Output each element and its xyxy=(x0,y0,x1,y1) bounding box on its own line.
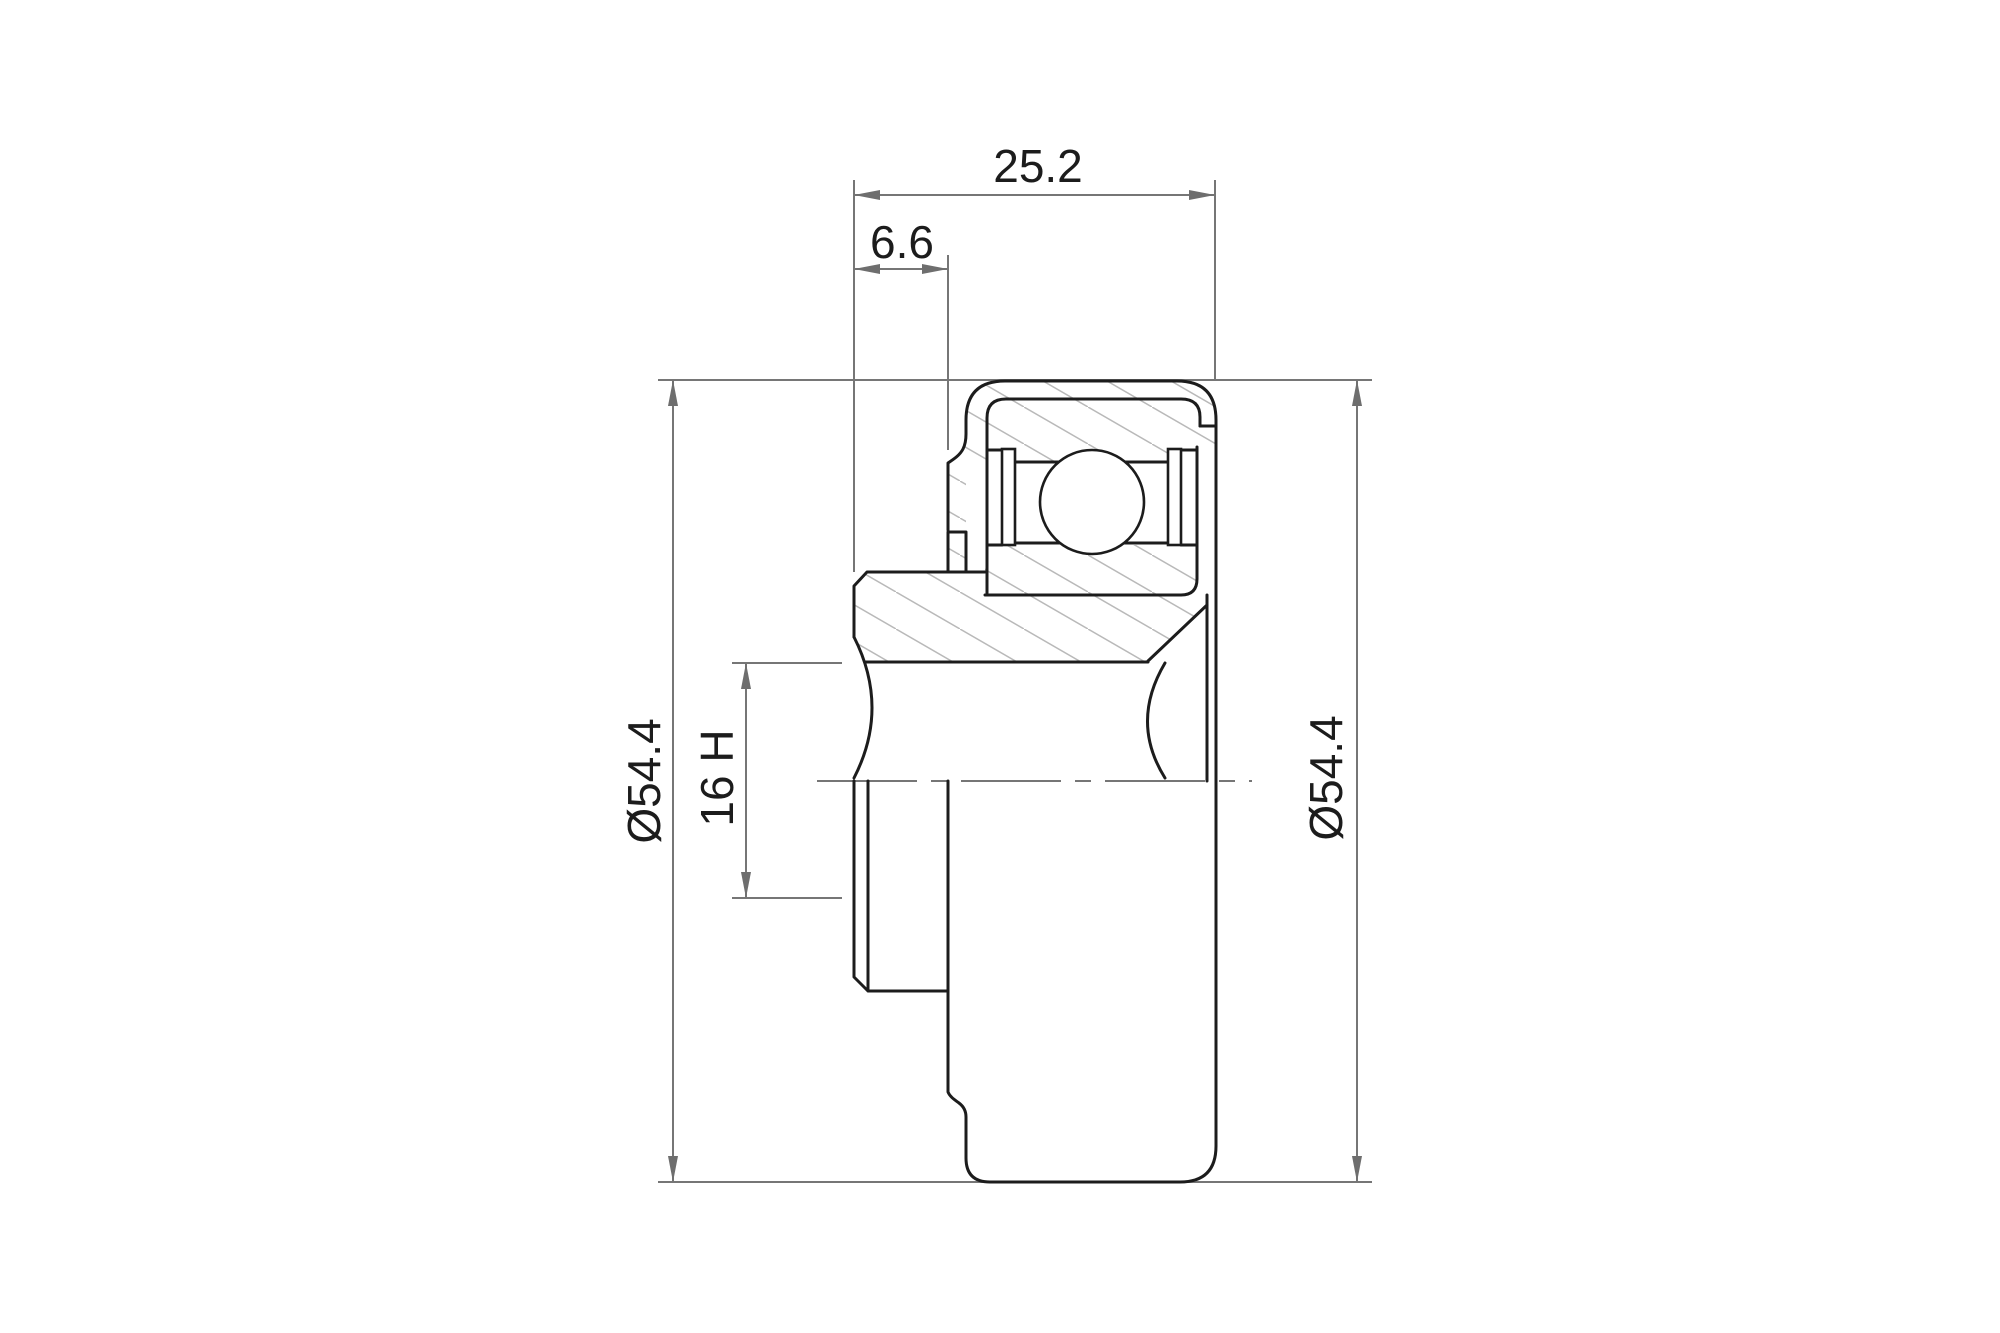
label-outer-diameter-left: Ø54.4 xyxy=(618,718,670,843)
arrow-252-left xyxy=(854,190,880,200)
arrow-d54l-bottom xyxy=(668,1156,678,1182)
left-gap xyxy=(987,450,1002,545)
label-total-width: 25.2 xyxy=(993,140,1083,192)
section-hatching xyxy=(854,381,1216,662)
flange-lower-silhouette xyxy=(854,781,948,991)
arrow-d54r-top xyxy=(1352,380,1362,406)
right-gap xyxy=(1181,450,1197,545)
label-flange-offset: 6.6 xyxy=(870,216,934,268)
label-outer-diameter-right: Ø54.4 xyxy=(1300,715,1352,840)
drawing-canvas: 25.2 6.6 Ø54.4 Ø54.4 16 H xyxy=(0,0,2000,1333)
dimension-lines xyxy=(658,180,1372,1182)
left-shield xyxy=(1002,449,1015,545)
label-bore-diameter: 16 H xyxy=(691,729,743,826)
bearing-ball xyxy=(1040,450,1144,554)
arrow-252-right xyxy=(1189,190,1215,200)
arrow-d54l-top xyxy=(668,380,678,406)
dimension-arrows xyxy=(668,190,1362,1182)
groove-curve-right xyxy=(1148,663,1166,778)
arrow-bore-top xyxy=(741,663,751,689)
inner-sleeve-hatch xyxy=(854,545,1207,662)
bearing-section-drawing: 25.2 6.6 Ø54.4 Ø54.4 16 H xyxy=(0,0,2000,1333)
arrow-d54r-bottom xyxy=(1352,1156,1362,1182)
arrow-bore-bottom xyxy=(741,872,751,898)
dimension-labels: 25.2 6.6 Ø54.4 Ø54.4 16 H xyxy=(618,140,1352,844)
right-shield xyxy=(1168,449,1181,545)
